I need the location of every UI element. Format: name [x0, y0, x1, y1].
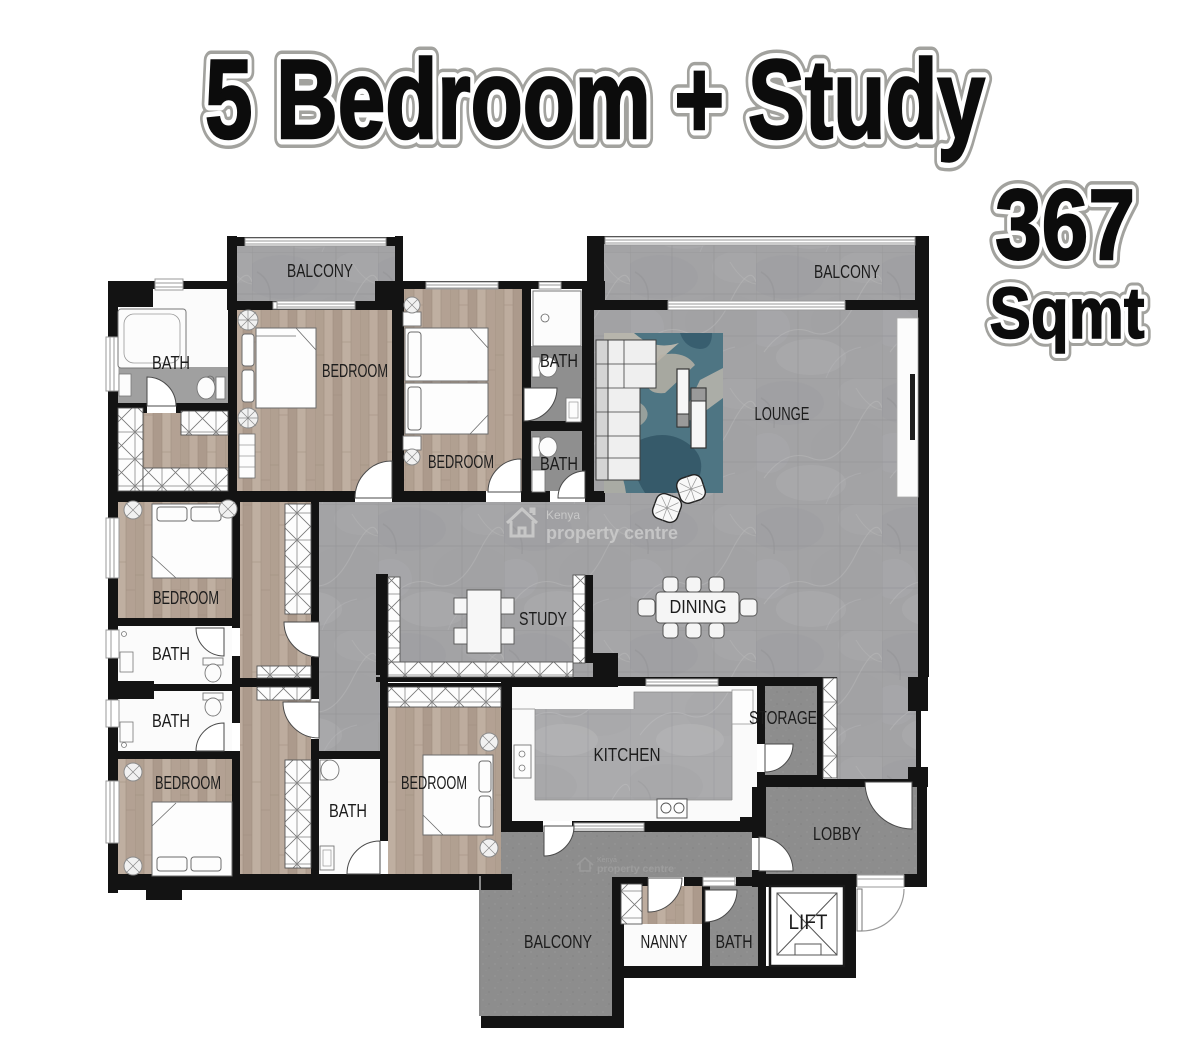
- svg-text:BATH: BATH: [716, 932, 753, 952]
- svg-text:BALCONY: BALCONY: [814, 262, 880, 282]
- svg-text:DINING: DINING: [670, 597, 727, 617]
- svg-text:BATH: BATH: [152, 353, 190, 373]
- svg-text:BEDROOM: BEDROOM: [322, 361, 388, 381]
- svg-text:367: 367: [995, 169, 1135, 281]
- svg-text:BATH: BATH: [540, 454, 578, 474]
- svg-text:LOUNGE: LOUNGE: [755, 404, 810, 424]
- svg-text:BEDROOM: BEDROOM: [153, 588, 219, 608]
- svg-text:LOBBY: LOBBY: [813, 824, 861, 844]
- svg-text:BALCONY: BALCONY: [287, 261, 353, 281]
- svg-text:BALCONY: BALCONY: [524, 932, 592, 952]
- svg-text:BEDROOM: BEDROOM: [401, 773, 467, 793]
- svg-text:BATH: BATH: [540, 351, 578, 371]
- svg-text:STUDY: STUDY: [519, 609, 567, 629]
- svg-text:property centre: property centre: [546, 523, 678, 543]
- svg-text:property centre: property centre: [597, 863, 674, 875]
- svg-text:NANNY: NANNY: [641, 932, 688, 952]
- svg-text:BEDROOM: BEDROOM: [428, 452, 494, 472]
- svg-text:STORAGE: STORAGE: [749, 708, 817, 728]
- svg-text:Kenya: Kenya: [546, 508, 580, 522]
- svg-text:5 Bedroom + Study: 5 Bedroom + Study: [205, 37, 985, 162]
- svg-text:BEDROOM: BEDROOM: [155, 773, 221, 793]
- svg-text:BATH: BATH: [329, 801, 367, 821]
- svg-text:KITCHEN: KITCHEN: [594, 745, 661, 765]
- svg-text:Sqmt: Sqmt: [990, 274, 1145, 354]
- svg-text:LIFT: LIFT: [789, 911, 828, 934]
- svg-text:BATH: BATH: [152, 644, 190, 664]
- svg-text:BATH: BATH: [152, 711, 190, 731]
